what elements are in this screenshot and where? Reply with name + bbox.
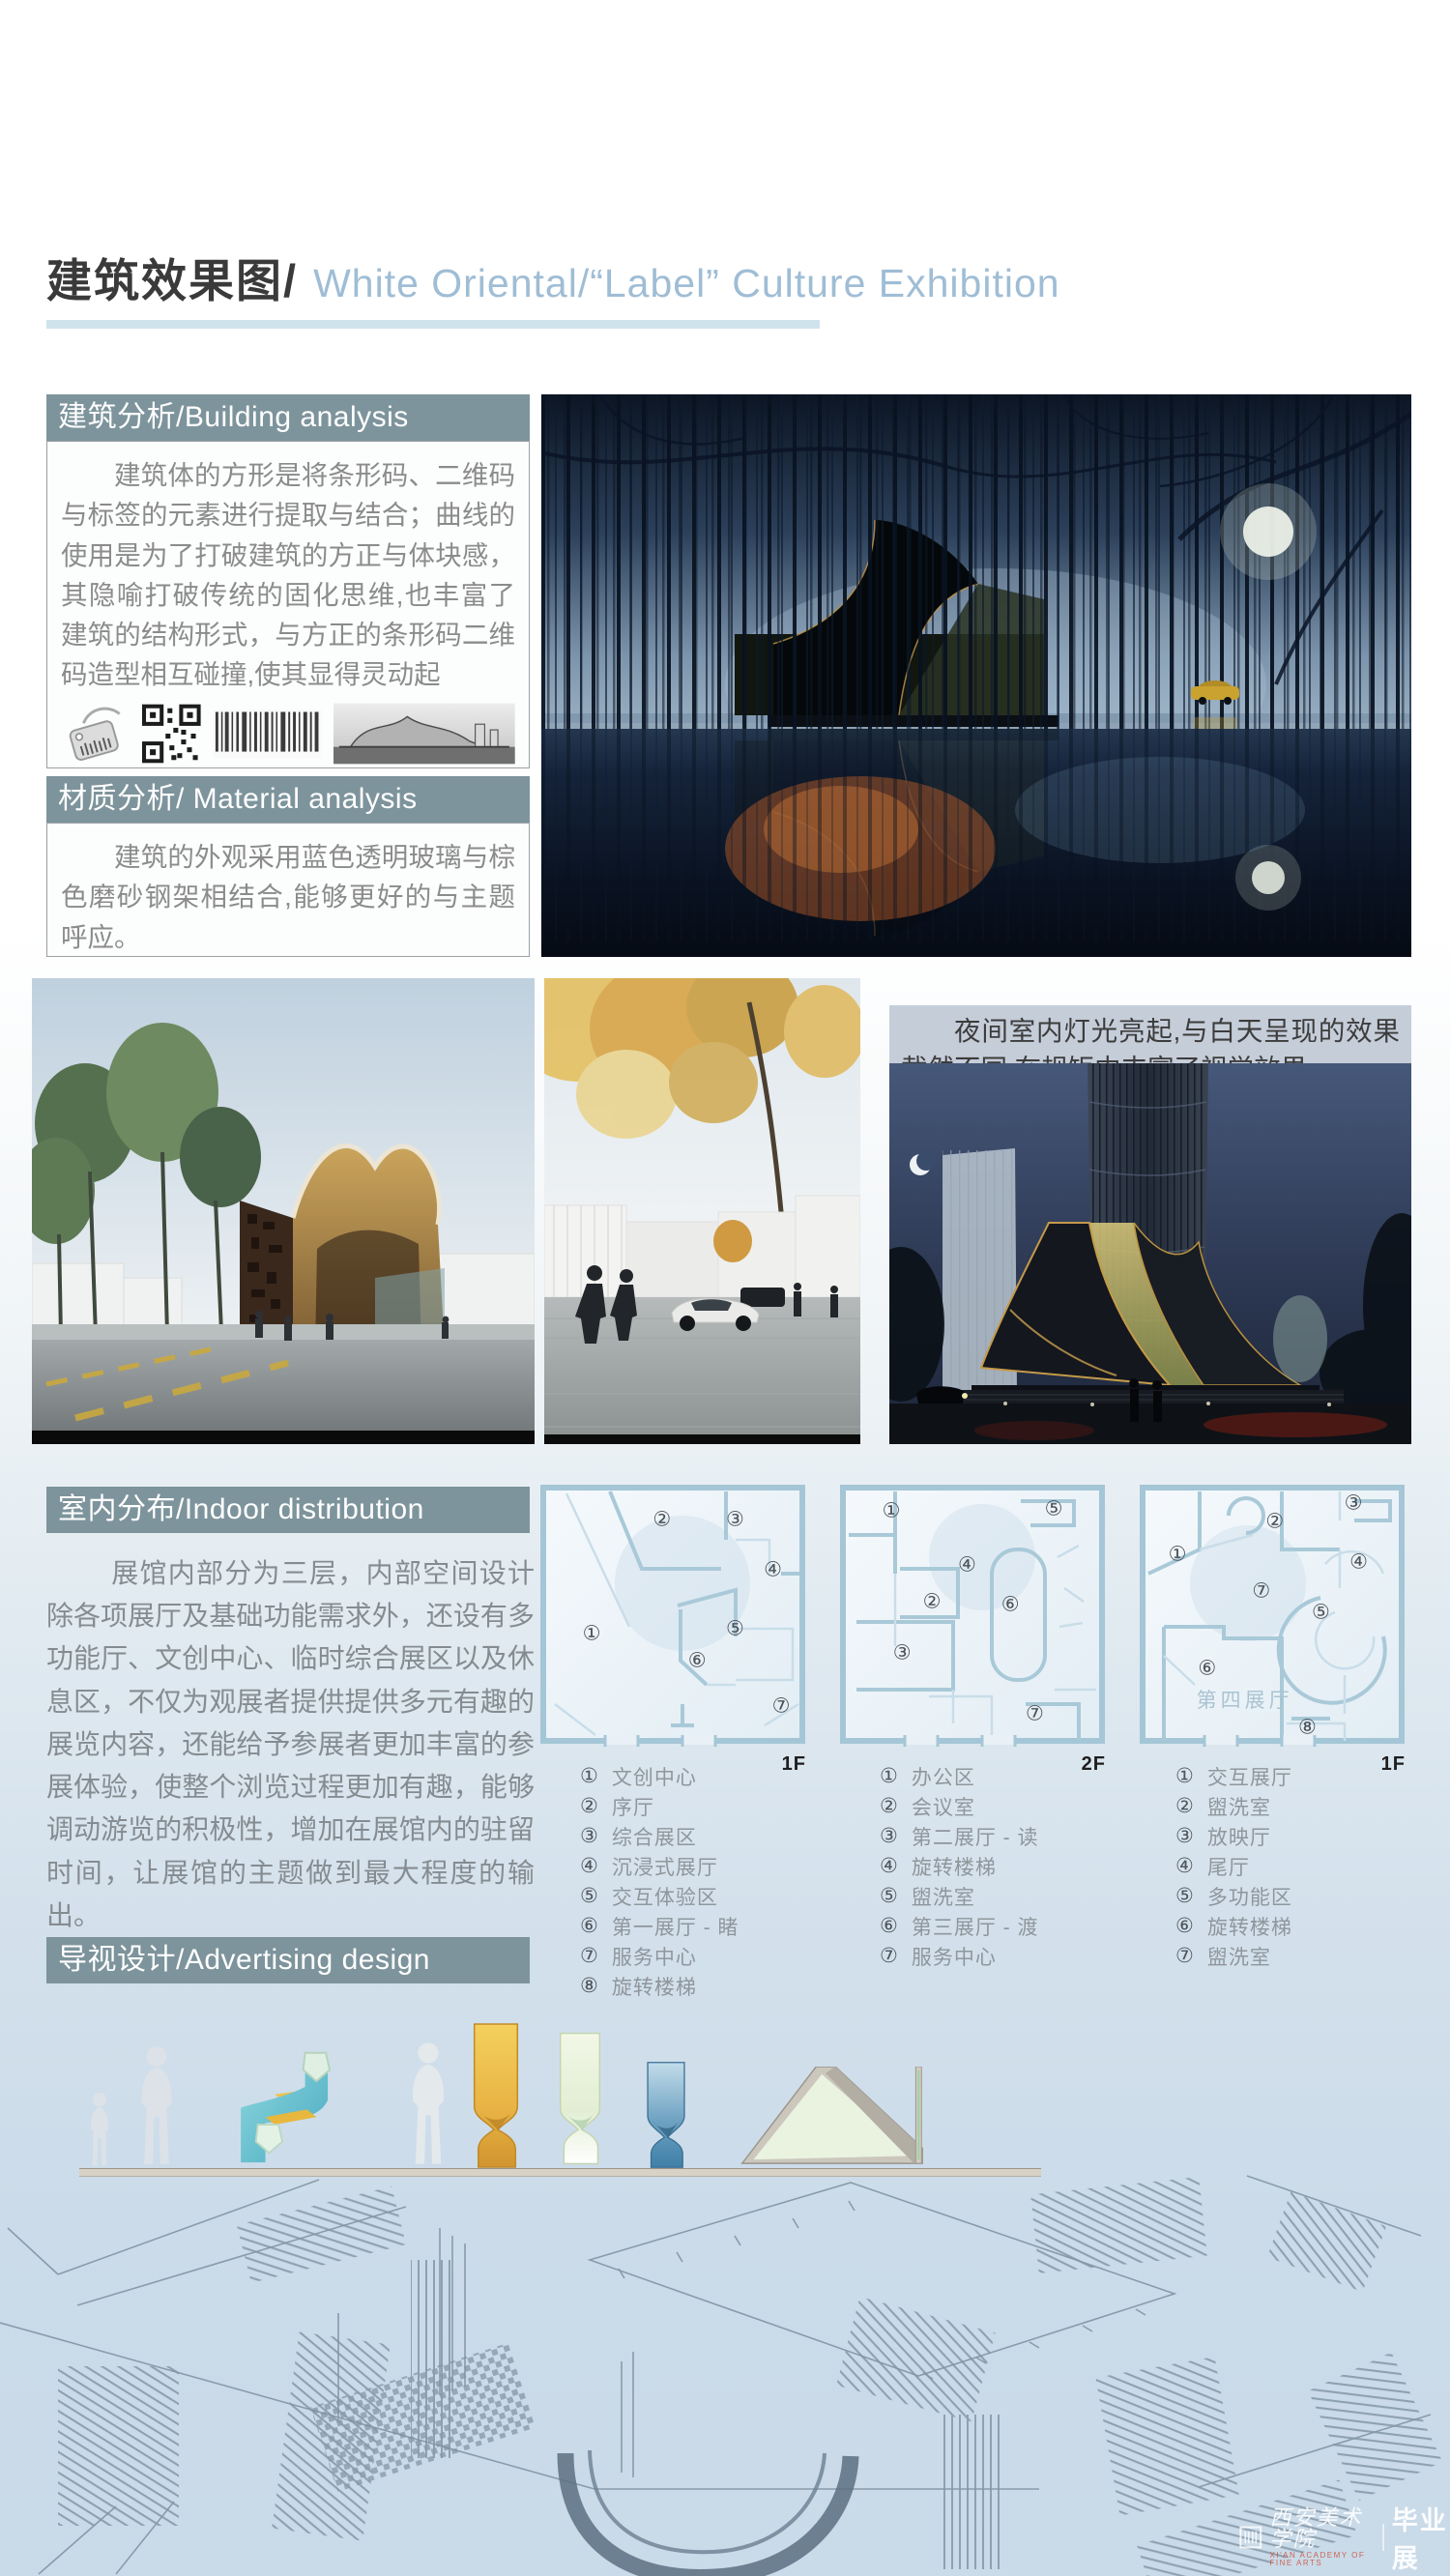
legend-label: 放映厅 <box>1207 1822 1271 1851</box>
material-analysis-body: 建筑的外观采用蓝色透明玻璃与棕色磨砂钢架相结合,能够更好的与主题呼应。 <box>61 837 515 957</box>
watermark-school-subtitle: XI'AN ACADEMY OF FINE ARTS <box>1270 2552 1376 2567</box>
legend-item: ④沉浸式展厅 <box>580 1851 831 1881</box>
legend-label: 服务中心 <box>912 1942 997 1971</box>
legend-number: ⑥ <box>880 1914 898 1938</box>
hourglass-sign-yellow <box>470 2022 522 2169</box>
legend-label: 第二展厅 - 读 <box>912 1822 1039 1851</box>
legend-label: 文创中心 <box>612 1762 697 1791</box>
legend-item: ⑥第一展厅 - 睹 <box>580 1911 831 1941</box>
concept-sketch-image <box>333 703 515 765</box>
legend-item: ③第二展厅 - 读 <box>880 1821 1131 1851</box>
signage-ground-bar <box>79 2168 1041 2177</box>
plan-marker: ⑥ <box>1001 1592 1020 1616</box>
page-title-zh: 建筑效果图/ <box>46 244 298 310</box>
section-header-indoor-distribution: 室内分布/Indoor distribution <box>46 1487 530 1533</box>
legend-number: ⑤ <box>1175 1884 1194 1908</box>
hourglass-sign-blue <box>644 2061 688 2169</box>
legend-item: ③综合展区 <box>580 1821 831 1851</box>
plan-marker: ⑦ <box>1026 1702 1044 1726</box>
legend-number: ④ <box>880 1854 898 1878</box>
legend-item: ①办公区 <box>880 1761 1131 1791</box>
plan-marker: ① <box>1169 1542 1187 1566</box>
render-daytime-building <box>32 978 535 1444</box>
legend-item: ⑦服务中心 <box>880 1941 1131 1971</box>
hourglass-sign-green <box>557 2028 603 2169</box>
legend-number: ⑦ <box>1175 1944 1194 1968</box>
render-street-view <box>544 978 860 1444</box>
plan-marker: ④ <box>958 1552 976 1577</box>
legend-number: ③ <box>1175 1824 1194 1848</box>
material-analysis-panel: 建筑的外观采用蓝色透明玻璃与棕色磨砂钢架相结合,能够更好的与主题呼应。 <box>46 823 530 957</box>
legend-label: 会议室 <box>912 1792 975 1821</box>
plan-marker: ③ <box>726 1507 744 1531</box>
legend-number: ⑤ <box>580 1884 598 1908</box>
barcode-icon <box>213 709 322 759</box>
legend-1f: ①文创中心 ②序厅 ③综合展区 ④沉浸式展厅 ⑤交互体验区 ⑥第一展厅 - 睹 … <box>580 1761 831 2001</box>
plan-marker: ⑧ <box>1298 1715 1317 1739</box>
watermark-exhibition: 毕业展 <box>1392 2500 1450 2575</box>
legend-number: ③ <box>580 1824 598 1848</box>
legend-number: ② <box>1175 1794 1194 1818</box>
plan-marker: ⑦ <box>1252 1579 1270 1604</box>
legend-item: ⑥第三展厅 - 渡 <box>880 1911 1131 1941</box>
legend-number: ⑦ <box>880 1944 898 1968</box>
legend-label: 旋转楼梯 <box>912 1852 997 1881</box>
legend-number: ③ <box>880 1824 898 1848</box>
legend-label: 盥洗室 <box>912 1882 975 1911</box>
legend-label: 办公区 <box>912 1762 975 1791</box>
person-child-silhouette <box>83 2092 116 2169</box>
signage-scene <box>0 1991 1450 2194</box>
legend-label: 沉浸式展厅 <box>612 1852 718 1881</box>
legend-item: ⑦服务中心 <box>580 1941 831 1971</box>
legend-label: 盥洗室 <box>1207 1942 1271 1971</box>
legend-number: ⑦ <box>580 1944 598 1968</box>
plan-marker: ① <box>883 1499 901 1523</box>
plan-marker: ② <box>923 1590 942 1614</box>
plan-marker: ④ <box>764 1558 782 1582</box>
title-underline <box>46 320 820 329</box>
legend-number: ① <box>880 1764 898 1788</box>
legend-number: ① <box>580 1764 598 1788</box>
legend-item: ④旋转楼梯 <box>880 1851 1131 1881</box>
legend-number: ⑥ <box>580 1914 598 1938</box>
plan-marker: ④ <box>1349 1549 1368 1574</box>
floor-plan-3: ① ② ③ ④ ⑤ ⑥ ⑦ ⑧ 第四展厅 1F <box>1137 1482 1407 1749</box>
plan-marker: ⑤ <box>726 1616 744 1640</box>
render-night-city <box>889 1063 1411 1444</box>
background-sketch-drawing <box>0 2168 1450 2576</box>
legend-number: ① <box>1175 1764 1194 1788</box>
legend-number: ② <box>580 1794 598 1818</box>
reference-icon-row <box>61 703 515 765</box>
legend-item: ⑥旋转楼梯 <box>1175 1911 1427 1941</box>
legend-item: ②会议室 <box>880 1791 1131 1821</box>
legend-number: ⑤ <box>880 1884 898 1908</box>
legend-number: ⑥ <box>1175 1914 1194 1938</box>
watermark-school-name: 西安美术学院 <box>1270 2507 1376 2550</box>
legend-item: ⑤盥洗室 <box>880 1881 1131 1911</box>
legend-item: ④尾厅 <box>1175 1851 1427 1881</box>
legend-item: ⑦盥洗室 <box>1175 1941 1427 1971</box>
watermark: 西安美术学院 XI'AN ACADEMY OF FINE ARTS 毕业展 xa… <box>1239 2500 1450 2576</box>
legend-item: ⑤交互体验区 <box>580 1881 831 1911</box>
section-header-building-analysis: 建筑分析/Building analysis <box>46 394 530 441</box>
plan-marker: ⑤ <box>1045 1496 1063 1520</box>
legend-number: ④ <box>580 1854 598 1878</box>
plan-marker: ③ <box>1345 1491 1363 1516</box>
legend-number: ④ <box>1175 1854 1194 1878</box>
ribbon-signage-sculpture <box>220 2041 356 2169</box>
watermark-row: 西安美术学院 XI'AN ACADEMY OF FINE ARTS 毕业展 <box>1239 2500 1450 2575</box>
tag-icon <box>61 704 130 764</box>
legend-label: 旋转楼梯 <box>1207 1912 1292 1941</box>
legend-label: 第三展厅 - 渡 <box>912 1912 1039 1941</box>
legend-label: 第一展厅 - 睹 <box>612 1912 739 1941</box>
floor-plan-1f: ① ② ③ ④ ⑤ ⑥ ⑦ 1F <box>537 1482 808 1749</box>
person-adult-silhouette <box>402 2041 454 2169</box>
section-header-material-analysis: 材质分析/ Material analysis <box>46 776 530 823</box>
building-analysis-panel: 建筑体的方形是将条形码、二维码与标签的元素进行提取与结合；曲线的使用是为了打破建… <box>46 441 530 768</box>
page-title: 建筑效果图/ White Oriental/“Label” Culture Ex… <box>46 244 1060 310</box>
academy-seal-icon <box>1239 2521 1262 2554</box>
legend-label: 交互展厅 <box>1207 1762 1292 1791</box>
legend-number: ② <box>880 1794 898 1818</box>
legend-3f: ①交互展厅 ②盥洗室 ③放映厅 ④尾厅 ⑤多功能区 ⑥旋转楼梯 ⑦盥洗室 <box>1175 1761 1427 1971</box>
watermark-divider <box>1382 2524 1383 2551</box>
indoor-distribution-body: 展馆内部分为三层，内部空间设计除各项展厅及基础功能需求外，还设有多功能厅、文创中… <box>46 1552 535 1937</box>
legend-item: ①文创中心 <box>580 1761 831 1791</box>
plan-marker: ⑥ <box>688 1648 707 1672</box>
legend-label: 序厅 <box>612 1792 654 1821</box>
section-header-advertising-design: 导视设计/Advertising design <box>46 1937 530 1983</box>
page-title-en: White Oriental/“Label” Culture Exhibitio… <box>313 261 1060 306</box>
watermark-school: 西安美术学院 XI'AN ACADEMY OF FINE ARTS <box>1270 2507 1376 2567</box>
legend-item: ①交互展厅 <box>1175 1761 1427 1791</box>
floor-plan-2f: ① ② ③ ④ ⑤ ⑥ ⑦ 2F <box>837 1482 1108 1749</box>
plan-marker: ① <box>583 1622 601 1646</box>
legend-label: 多功能区 <box>1207 1882 1292 1911</box>
poster-canvas: 建筑效果图/ White Oriental/“Label” Culture Ex… <box>0 0 1450 2576</box>
qr-code-icon <box>142 704 201 764</box>
building-analysis-body: 建筑体的方形是将条形码、二维码与标签的元素进行提取与结合；曲线的使用是为了打破建… <box>61 455 515 695</box>
legend-label: 服务中心 <box>612 1942 697 1971</box>
person-adult-silhouette <box>131 2045 182 2169</box>
plan-marker: ⑦ <box>772 1693 791 1718</box>
plan-marker: ② <box>1265 1510 1284 1534</box>
legend-label: 交互体验区 <box>612 1882 718 1911</box>
legend-label: 尾厅 <box>1207 1852 1250 1881</box>
hero-night-forest-render <box>541 394 1411 957</box>
plan-marker: ⑤ <box>1312 1601 1330 1625</box>
wedge-sign <box>740 2067 926 2169</box>
plan-marker: ③ <box>893 1640 912 1664</box>
legend-label: 综合展区 <box>612 1822 697 1851</box>
legend-item: ⑤多功能区 <box>1175 1881 1427 1911</box>
legend-item: ②盥洗室 <box>1175 1791 1427 1821</box>
plan-marker: ② <box>652 1507 671 1531</box>
plan-marker: ⑥ <box>1198 1657 1216 1681</box>
legend-item: ②序厅 <box>580 1791 831 1821</box>
legend-item: ③放映厅 <box>1175 1821 1427 1851</box>
legend-label: 盥洗室 <box>1207 1792 1271 1821</box>
legend-2f: ①办公区 ②会议室 ③第二展厅 - 读 ④旋转楼梯 ⑤盥洗室 ⑥第三展厅 - 渡… <box>880 1761 1131 1971</box>
room-label-hall4: 第四展厅 <box>1197 1685 1293 1714</box>
